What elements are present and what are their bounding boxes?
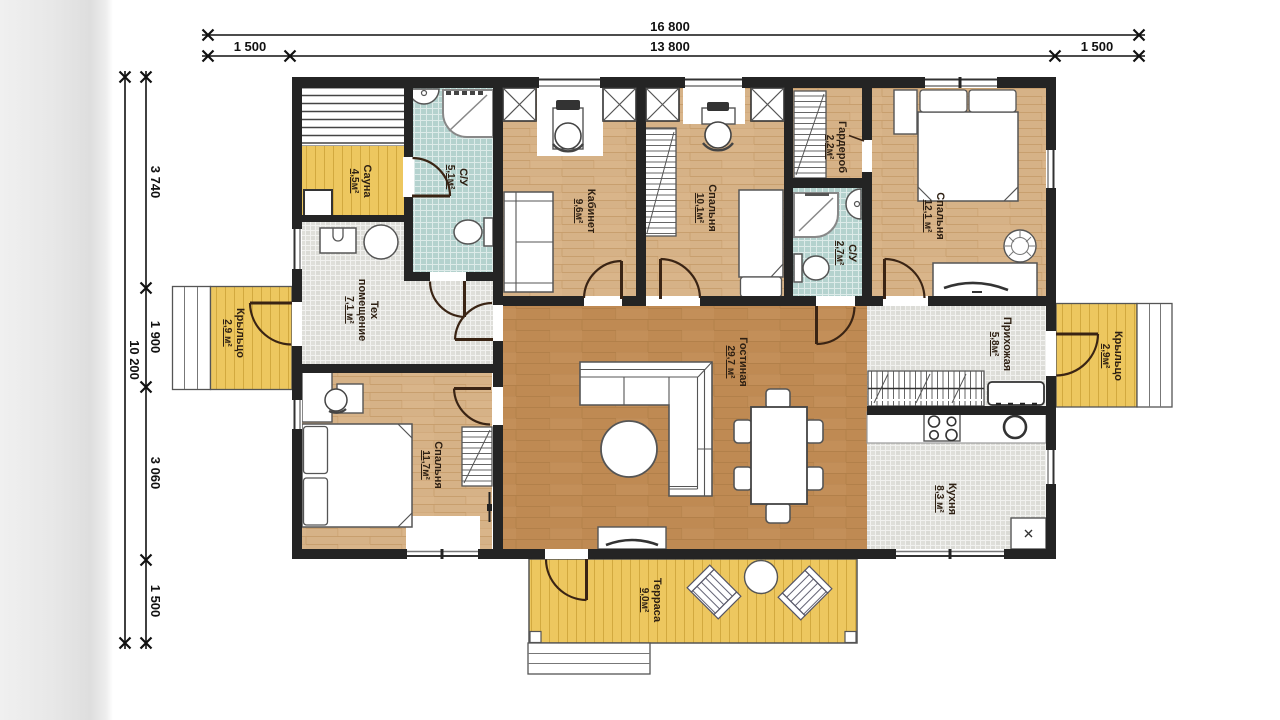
svg-text:С/У: С/У xyxy=(457,168,469,186)
svg-text:С/У: С/У xyxy=(846,244,858,262)
svg-text:Спальня: Спальня xyxy=(706,184,718,232)
svg-text:Крыльцо: Крыльцо xyxy=(234,308,246,358)
svg-text:29,7 м²: 29,7 м² xyxy=(725,346,736,380)
svg-text:10 200: 10 200 xyxy=(127,340,142,380)
svg-text:2,9м²: 2,9м² xyxy=(1100,344,1111,369)
svg-text:11,7м²: 11,7м² xyxy=(420,450,431,480)
svg-text:9,0м²: 9,0м² xyxy=(639,588,650,613)
svg-text:7,1 м²: 7,1 м² xyxy=(344,296,355,324)
svg-text:13 800: 13 800 xyxy=(650,39,690,54)
svg-text:Крыльцо: Крыльцо xyxy=(1112,331,1124,381)
svg-text:Кабинет: Кабинет xyxy=(585,189,597,234)
svg-text:5,1м²: 5,1м² xyxy=(445,165,456,190)
svg-text:2,9 м²: 2,9 м² xyxy=(222,319,233,347)
svg-text:Сауна: Сауна xyxy=(361,164,373,198)
svg-text:Гостиная: Гостиная xyxy=(737,337,749,387)
svg-text:5,8м²: 5,8м² xyxy=(989,332,1000,357)
svg-text:Спальня: Спальня xyxy=(934,192,946,240)
svg-text:Прихожая: Прихожая xyxy=(1001,317,1013,371)
svg-text:1 900: 1 900 xyxy=(148,321,163,354)
svg-text:Терраса: Терраса xyxy=(651,578,663,623)
svg-text:8,3 м²: 8,3 м² xyxy=(934,485,945,513)
svg-text:4,5м²: 4,5м² xyxy=(349,169,360,194)
svg-text:1 500: 1 500 xyxy=(234,39,267,54)
svg-text:Кухня: Кухня xyxy=(946,483,958,515)
svg-text:12,1 м²: 12,1 м² xyxy=(922,200,933,234)
svg-text:3 740: 3 740 xyxy=(148,166,163,199)
svg-text:помещение: помещение xyxy=(356,279,368,341)
svg-text:9,6м²: 9,6м² xyxy=(573,199,584,224)
svg-text:2,7м²: 2,7м² xyxy=(834,241,845,266)
svg-text:10,1м²: 10,1м² xyxy=(694,193,705,224)
svg-text:3 060: 3 060 xyxy=(148,457,163,490)
svg-text:1 500: 1 500 xyxy=(148,585,163,618)
svg-text:Спальня: Спальня xyxy=(432,441,444,489)
svg-text:Гардероб: Гардероб xyxy=(836,121,848,173)
svg-text:2,2м²: 2,2м² xyxy=(824,135,835,160)
svg-text:16 800: 16 800 xyxy=(650,19,690,34)
svg-text:1 500: 1 500 xyxy=(1081,39,1114,54)
svg-text:Тех: Тех xyxy=(368,301,380,320)
